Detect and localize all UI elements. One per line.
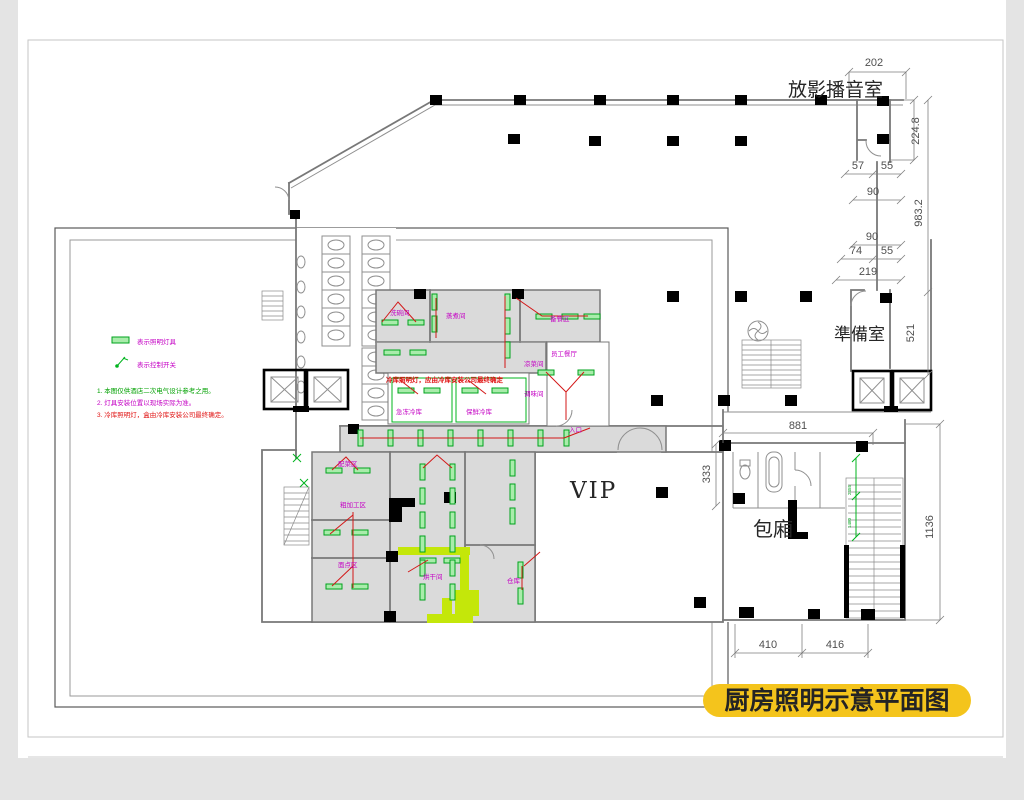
legend-switch-dot — [115, 364, 119, 368]
drawing-title: 厨房照明示意平面图 — [724, 686, 949, 715]
title-pill: 厨房照明示意平面图 — [703, 684, 971, 717]
dim-521: 521 — [905, 324, 917, 342]
plan-note-cold-storage: 冷库照明灯，应由冷库安装公司最终确定 — [386, 375, 504, 384]
dim-74: 74 — [850, 245, 862, 257]
dim-881: 881 — [789, 420, 807, 432]
dim-55a: 55 — [881, 160, 893, 172]
label-freezer: 急冻冷库 — [396, 407, 423, 416]
label-drying: 烘干间 — [423, 572, 443, 581]
label-veg-prep: 配菜区 — [338, 459, 358, 468]
dim-333: 333 — [701, 465, 713, 483]
dim-224-8: 224.8 — [910, 117, 922, 145]
label-staff-dining: 员工餐厅 — [551, 349, 578, 358]
label-entrance: 入口 — [569, 426, 582, 434]
legend-lamp-label: 表示照明灯具 — [137, 337, 177, 346]
green-dim-2455: 2455 — [847, 484, 852, 495]
legend-switch-label: 表示控制开关 — [137, 360, 177, 369]
dim-983-2: 983.2 — [913, 199, 925, 227]
floor-plan-drawing: 2455 1480 — [0, 0, 1024, 800]
label-storage: 仓库 — [507, 576, 521, 585]
legend-lamp-symbol — [112, 337, 129, 343]
label-steaming: 蒸煮间 — [446, 311, 466, 320]
label-cold-dish: 凉菜间 — [524, 359, 544, 368]
dim-90a: 90 — [867, 186, 879, 198]
label-seasoning: 调味间 — [524, 389, 544, 398]
dim-90b: 90 — [866, 231, 878, 243]
label-dishwash: 洗碗间 — [390, 308, 410, 317]
label-fresh-cold: 保鲜冷库 — [466, 407, 493, 416]
dim-410: 410 — [759, 639, 777, 651]
dim-416: 416 — [826, 639, 844, 651]
dim-55b: 55 — [881, 245, 893, 257]
dim-202: 202 — [865, 57, 883, 69]
note-3: 3. 冷库照明灯，盒由冷库安装公司最终确定。 — [97, 410, 228, 419]
label-pastry: 面点区 — [338, 561, 358, 569]
note-1: 1. 本图仅供酒店二次电气设计参考之用。 — [97, 386, 215, 395]
label-rough-prep: 粗加工区 — [340, 500, 367, 509]
label-food-prep: 备餐区 — [550, 314, 570, 323]
dim-57: 57 — [852, 160, 864, 172]
cad-sheet-view: 2455 1480 — [0, 0, 1024, 800]
label-projection-room: 放影播音室 — [788, 79, 883, 101]
dim-1136: 1136 — [924, 515, 936, 539]
label-vip: VIP — [569, 478, 617, 504]
note-2: 2. 灯具安装位置以现场实际为准。 — [97, 398, 195, 407]
label-private-room: 包廂 — [753, 517, 793, 541]
label-prep-room: 準備室 — [834, 325, 885, 345]
green-dim-1480: 1480 — [847, 517, 852, 528]
dim-219: 219 — [859, 266, 877, 278]
